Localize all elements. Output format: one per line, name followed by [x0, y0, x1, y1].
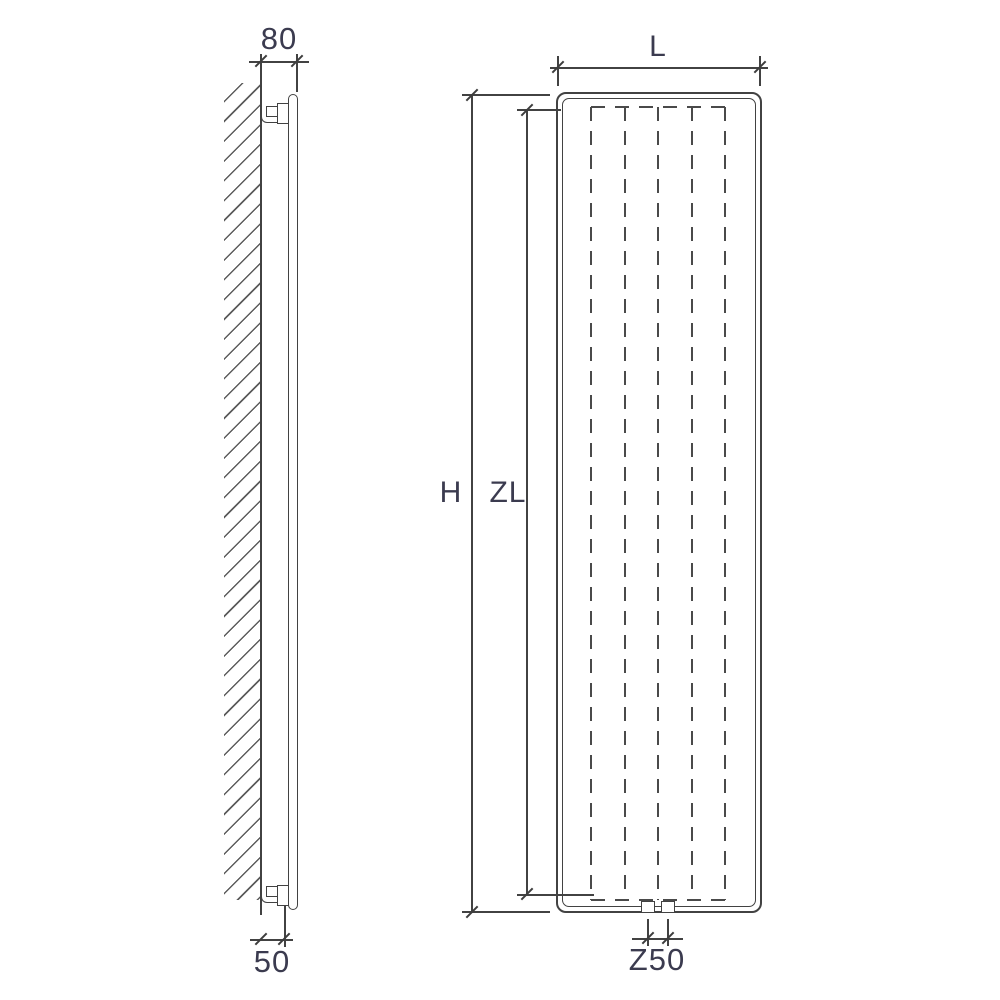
dim-Z50-label: Z50 [617, 944, 697, 975]
dim-Z50-line [632, 938, 683, 940]
bottom-pipe-line [284, 905, 286, 947]
bracket-bottom-hook [261, 893, 278, 903]
radiator-dimension-drawing: 80 50 [0, 0, 1000, 1000]
radiator-panel-side [288, 94, 298, 910]
dim-L-label: L [628, 32, 688, 62]
dashed-channel-1 [590, 107, 592, 900]
bracket-top-hook [261, 113, 278, 123]
bracket-top-body [277, 103, 289, 124]
dim-H-ext-top [462, 94, 550, 96]
connection-port-left [641, 901, 655, 913]
dashed-channel-2 [624, 107, 626, 900]
connection-port-right [661, 901, 675, 913]
dim-H-label: H [436, 478, 466, 508]
bracket-bottom-body [277, 885, 289, 906]
dashed-channel-5 [724, 107, 726, 900]
dim-L-line [550, 67, 768, 69]
dim-ZL-label: ZL [487, 478, 529, 508]
dashed-channel-3 [657, 107, 659, 900]
dim-L-ext-right [759, 56, 761, 86]
dashed-channel-4 [691, 107, 693, 900]
dim-H-ext-bottom [462, 911, 550, 913]
dim-H-line [471, 95, 473, 912]
dim-80-label: 80 [249, 23, 309, 54]
wall-hatch [224, 83, 261, 900]
dim-L-ext-left [557, 56, 559, 86]
wall-face-line [260, 54, 262, 915]
dim-ZL-ext-bottom [517, 894, 594, 896]
dim-50-label: 50 [242, 946, 302, 977]
